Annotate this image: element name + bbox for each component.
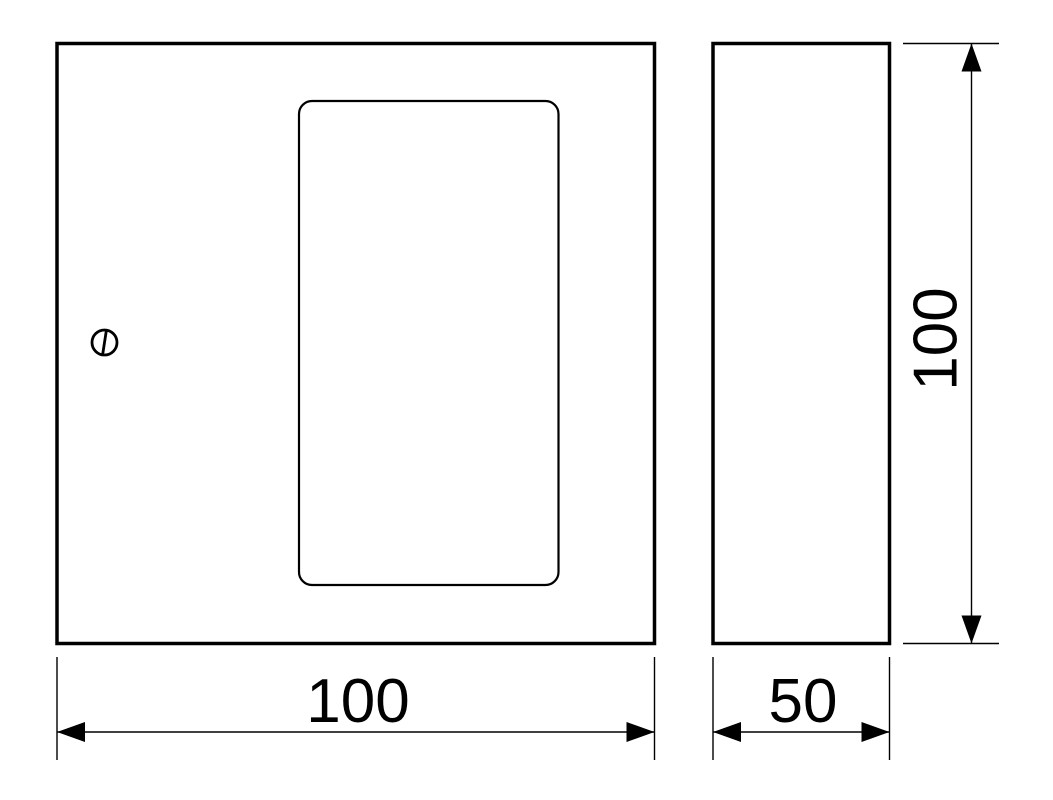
side-view-outline (713, 44, 890, 644)
arrowhead-left-icon (713, 722, 741, 742)
front-view (57, 44, 655, 644)
arrowhead-right-icon (627, 722, 655, 742)
door-panel-outline (299, 101, 559, 585)
arrowhead-up-icon (962, 44, 982, 72)
technical-drawing: 100 50 100 (0, 0, 1053, 800)
drawing-canvas: 100 50 100 (0, 0, 1053, 800)
dimension-side-width: 50 (713, 657, 890, 760)
dimension-label-side-height: 100 (902, 287, 971, 390)
dimension-front-width: 100 (57, 657, 655, 760)
dimension-label-front-width: 100 (306, 667, 409, 736)
side-view (713, 44, 890, 644)
arrowhead-left-icon (57, 722, 85, 742)
dimension-side-height: 100 (902, 44, 1000, 644)
arrowhead-down-icon (962, 616, 982, 644)
dimension-label-side-width: 50 (769, 667, 838, 736)
screw-slot-line (103, 330, 107, 356)
screw-slot-icon (92, 330, 117, 356)
front-view-outline (57, 44, 655, 644)
arrowhead-right-icon (862, 722, 890, 742)
